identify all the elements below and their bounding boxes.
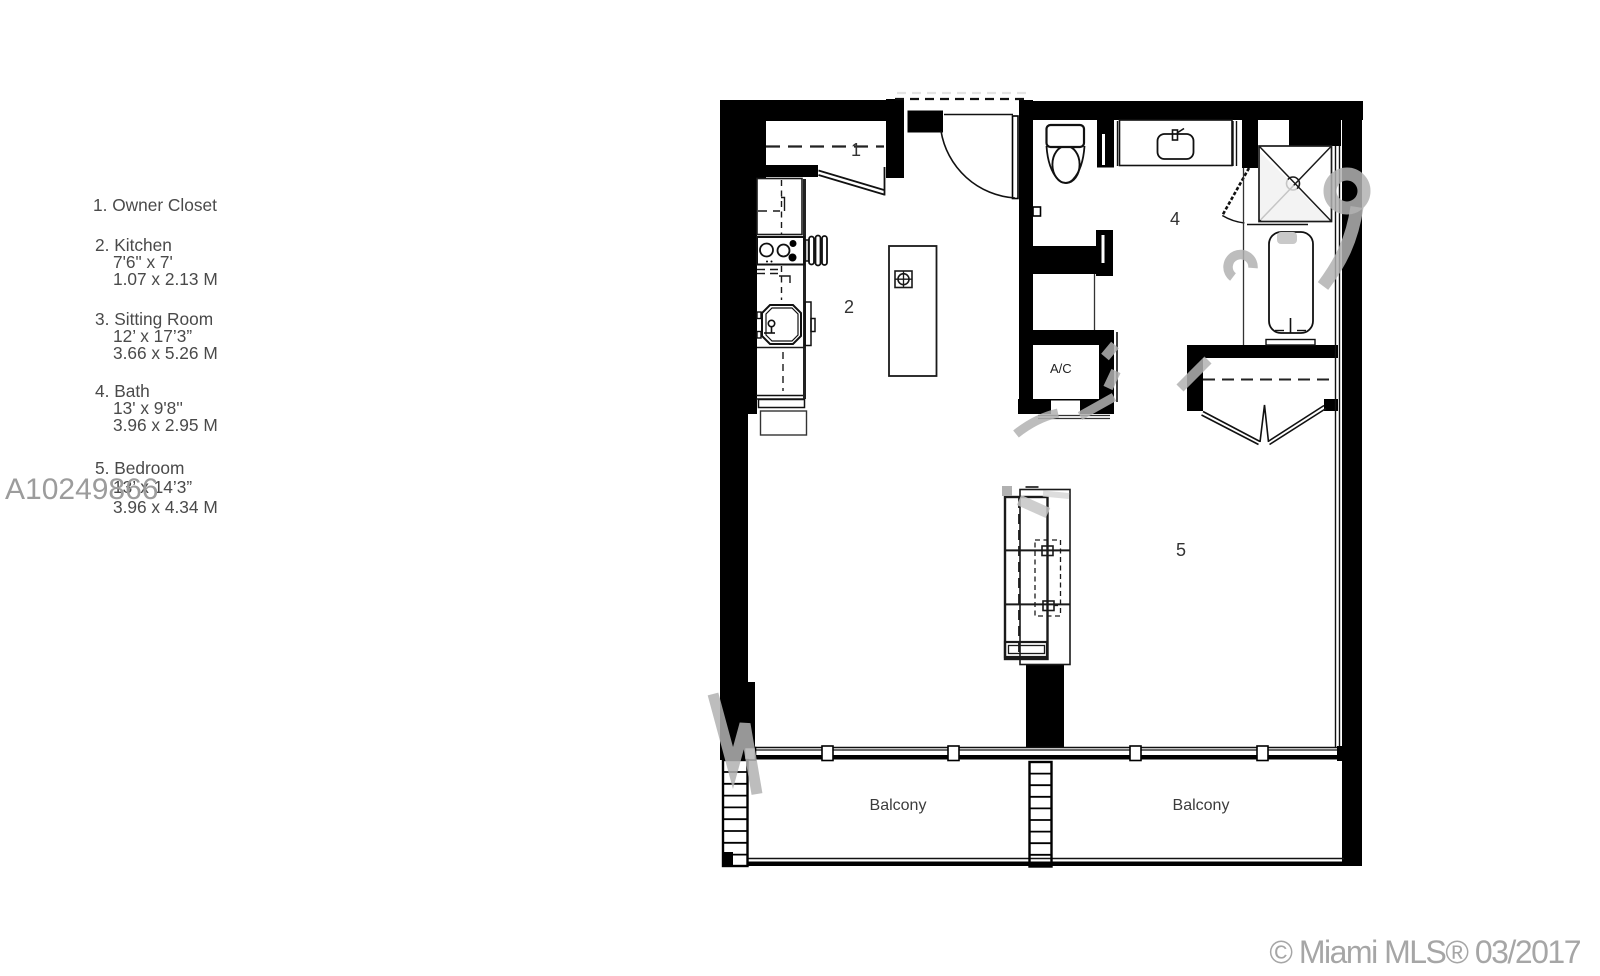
svg-text:© Miami MLS® 03/2017: © Miami MLS® 03/2017 xyxy=(1269,934,1580,970)
svg-text:1. Owner Closet: 1. Owner Closet xyxy=(93,195,217,215)
svg-text:1: 1 xyxy=(851,140,861,160)
svg-text:Balcony: Balcony xyxy=(870,797,927,814)
svg-text:3.96 x 2.95 M: 3.96 x 2.95 M xyxy=(113,415,218,435)
svg-text:A10249866: A10249866 xyxy=(5,473,159,506)
svg-text:5: 5 xyxy=(1176,540,1186,560)
svg-text:3.66 x 5.26 M: 3.66 x 5.26 M xyxy=(113,343,218,363)
svg-text:Balcony: Balcony xyxy=(1173,797,1230,814)
svg-text:1.07 x 2.13 M: 1.07 x 2.13 M xyxy=(113,269,218,289)
svg-text:A/C: A/C xyxy=(1050,361,1072,376)
svg-text:2: 2 xyxy=(844,297,854,317)
svg-text:4: 4 xyxy=(1170,209,1180,229)
